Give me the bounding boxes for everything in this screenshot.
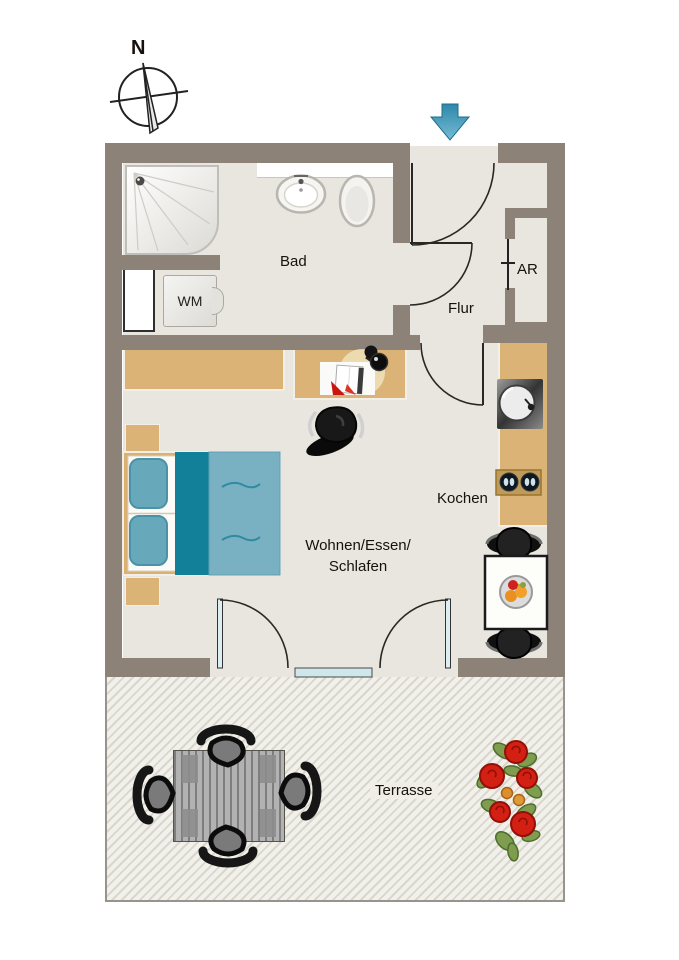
flowers-icon: [474, 740, 545, 862]
kitchen-sink: [497, 379, 543, 429]
entrance-arrow-icon: [431, 104, 469, 140]
terrace-chair-north: [201, 729, 251, 765]
toilet: [340, 176, 374, 226]
terrace-chair-west: [137, 770, 173, 820]
room-label-wohnen-line2: Schlafen: [288, 556, 428, 577]
shower: [126, 166, 218, 254]
bed: [123, 452, 280, 575]
room-label-wohnen: Wohnen/Essen/ Schlafen: [288, 535, 428, 577]
bed-duvet: [209, 452, 280, 575]
compass-north-label: N: [131, 38, 145, 59]
desk-items: [320, 346, 388, 396]
door-threshold-glass: [295, 668, 372, 677]
room-label-kochen: Kochen: [437, 488, 488, 509]
compass-icon: [110, 63, 188, 133]
office-chair: [303, 407, 362, 461]
bed-blanket: [175, 452, 209, 575]
storage-door: [501, 239, 515, 290]
room-label-flur: Flur: [448, 298, 474, 319]
bathroom-door: [410, 243, 472, 305]
dining-table: [485, 556, 547, 629]
room-label-terrasse: Terrasse: [370, 780, 438, 801]
terrace-chair-south: [203, 827, 253, 863]
pillow-top: [130, 459, 167, 508]
room-label-wohnen-line1: Wohnen/Essen/: [288, 535, 428, 556]
bathroom-sink: [277, 176, 325, 213]
dining-chair-bottom: [487, 628, 541, 658]
room-label-bad: Bad: [280, 251, 307, 272]
living-room-door: [421, 343, 483, 405]
pillow-bottom: [130, 516, 167, 565]
french-door-right: [380, 599, 451, 668]
dining-chair-top: [487, 528, 541, 558]
cooktop: [496, 470, 541, 495]
floor-plan: WM: [0, 0, 679, 960]
terrace-chair-east: [281, 766, 317, 816]
entrance-door: [412, 163, 494, 245]
room-label-ar: AR: [517, 259, 538, 280]
french-door-left: [218, 599, 289, 668]
